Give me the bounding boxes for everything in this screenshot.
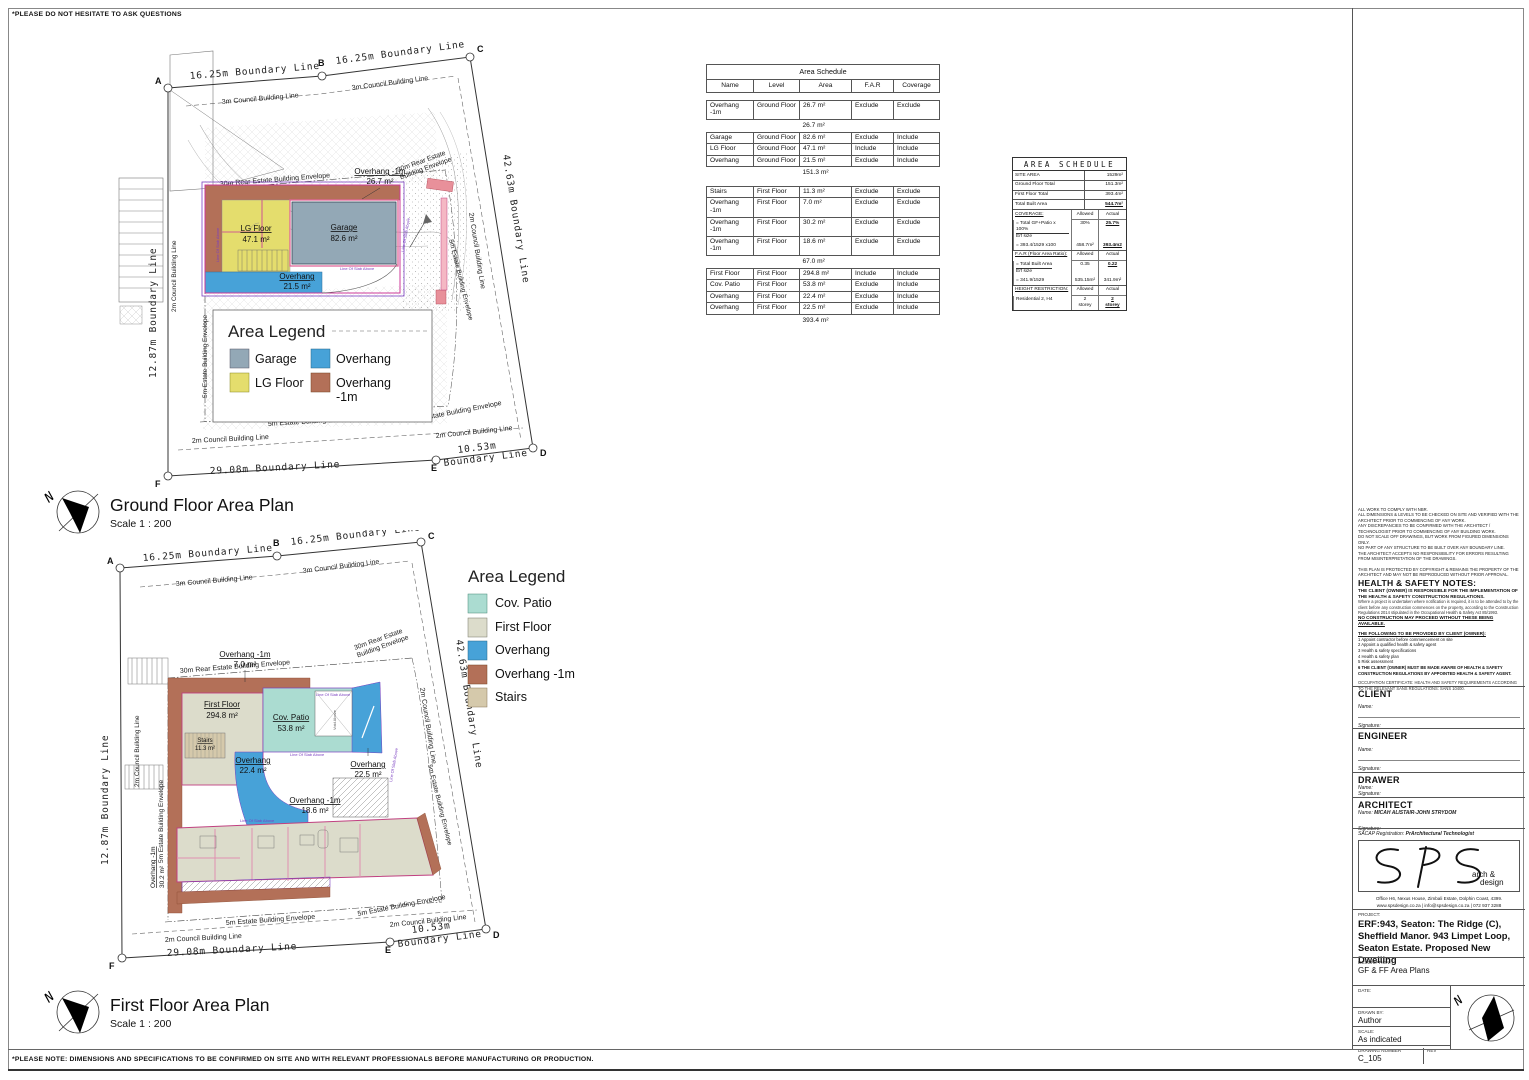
legend-label-overhang: Overhang bbox=[336, 352, 391, 366]
description-label: DESCRIPTION: bbox=[1358, 960, 1520, 965]
schedule-title: Area Schedule bbox=[707, 65, 940, 80]
col-header-area: Area bbox=[800, 80, 852, 93]
area-value-overhang: 21.5 m² bbox=[283, 282, 310, 291]
cell-area: 22.4 m² bbox=[800, 291, 852, 303]
table-row: Overhang -1mFirst Floor7.0 m²ExcludeExcl… bbox=[707, 198, 940, 217]
project-section: PROJECT: ERF:943, Seaton: The Ridge (C),… bbox=[1353, 909, 1525, 957]
legend-swatch-garage bbox=[230, 349, 249, 368]
cell-far: Exclude bbox=[852, 303, 894, 315]
legend-label-overhang-1m: -1m bbox=[336, 390, 358, 404]
height-actual: 2 bbox=[1111, 297, 1114, 302]
cell-coverage: Exclude bbox=[894, 186, 940, 198]
boundary-label-fa: 12.87m Boundary Line bbox=[100, 735, 111, 865]
subtotal-row: 393.4 m² bbox=[707, 314, 940, 326]
legend-swatch-overhang-1m bbox=[311, 373, 330, 392]
north-letter: N bbox=[41, 489, 58, 506]
table-row: Cov. PatioFirst Floor53.8 m²ExcludeInclu… bbox=[707, 280, 940, 292]
area-value-lg-floor: 47.1 m² bbox=[242, 235, 269, 244]
pt-d: D bbox=[493, 930, 500, 940]
cell-coverage: Exclude bbox=[894, 198, 940, 217]
cell-area: 11.3 m² bbox=[800, 186, 852, 198]
cell-name: Overhang -1m bbox=[707, 198, 754, 217]
cell-level: First Floor bbox=[754, 280, 800, 292]
pt-d: D bbox=[540, 448, 547, 458]
boundary-label-bc: 16.25m Boundary Line bbox=[290, 530, 421, 548]
area-value-oh1m-7: 7.0 m² bbox=[234, 660, 257, 669]
envelope-5m-label: 5m Estate Building Envelope bbox=[158, 780, 165, 863]
far-label: F.A.R (Floor Area Ratio): bbox=[1013, 251, 1071, 261]
drawn-by-value: Author bbox=[1358, 1016, 1445, 1025]
architect-title: ARCHITECT bbox=[1358, 800, 1520, 810]
cell-level: First Floor bbox=[754, 303, 800, 315]
far-allowed: 0.35 bbox=[1071, 261, 1098, 277]
pt-a: A bbox=[155, 76, 162, 86]
pt-c: C bbox=[477, 44, 484, 54]
far-allowed: 535.15m² bbox=[1071, 276, 1098, 285]
ground-legend: Area Legend Garage Overhang LG Floor Ove… bbox=[213, 310, 432, 422]
cell-far: Exclude bbox=[852, 100, 894, 119]
drawn-by-label: DRAWN BY: bbox=[1358, 1010, 1445, 1015]
summary-row-ff-total: First Floor Total393.4m² bbox=[1013, 191, 1126, 201]
summary-value: 393.4m² bbox=[1084, 191, 1126, 200]
cell-far: Include bbox=[852, 144, 894, 156]
coverage-formula: = Total GF+Patio x 100% bbox=[1016, 221, 1069, 234]
subtotal-value: 151.3 m² bbox=[800, 167, 852, 179]
cell-far: Exclude bbox=[852, 236, 894, 255]
cell-name: Stairs bbox=[707, 186, 754, 198]
pt-f: F bbox=[109, 961, 115, 971]
legend-swatch-stairs bbox=[468, 688, 487, 707]
health-safety-notes: HEALTH & SAFETY NOTES: THE CLIENT (OWNER… bbox=[1353, 576, 1525, 693]
summary-row-gf-total: Ground Floor Total151.3m² bbox=[1013, 181, 1126, 191]
allowed-header: Allowed bbox=[1071, 286, 1098, 296]
first-legend-title: Area Legend bbox=[468, 567, 565, 586]
legend-label-first-floor: First Floor bbox=[495, 620, 551, 634]
actual-header: Actual bbox=[1098, 251, 1126, 261]
bottom-note-band: *PLEASE NOTE: DIMENSIONS AND SPECIFICATI… bbox=[8, 1049, 1524, 1071]
area-label-overhang-b: Overhang bbox=[350, 760, 385, 769]
summary-label: First Floor Total bbox=[1013, 191, 1084, 200]
area-label-overhang: Overhang bbox=[279, 272, 314, 281]
summary-row-total-built: Total Built Area544.7m² bbox=[1013, 200, 1126, 210]
legend-label-stairs: Stairs bbox=[495, 690, 527, 704]
table-row: Overhang -1mFirst Floor18.6 m²ExcludeExc… bbox=[707, 236, 940, 255]
area-label-cov-patio: Cov. Patio bbox=[273, 713, 310, 722]
height-label: HEIGHT RESTRICTION: bbox=[1013, 286, 1071, 296]
legend-label-overhang: Overhang bbox=[495, 643, 550, 657]
slab-label: Line Of Slab Above bbox=[316, 692, 351, 697]
drawer-title: DRAWER bbox=[1358, 775, 1520, 785]
cell-level: First Floor bbox=[754, 186, 800, 198]
engineer-section: ENGINEER Name: Signature: bbox=[1353, 728, 1525, 772]
garage-area-shape bbox=[292, 202, 396, 264]
subtotal-value: 67.0 m² bbox=[800, 255, 852, 268]
legend-swatch-overhang-1m bbox=[468, 665, 487, 684]
cell-name: Overhang bbox=[707, 291, 754, 303]
cell-area: 21.5 m² bbox=[800, 155, 852, 167]
void-above-label: Void Above bbox=[332, 709, 337, 730]
drawer-section: DRAWER Name: Signature: bbox=[1353, 772, 1525, 797]
height-actual: storey bbox=[1105, 303, 1119, 308]
legend-swatch-overhang bbox=[311, 349, 330, 368]
pt-b: B bbox=[273, 538, 280, 548]
coverage-actual: 25.7% bbox=[1098, 220, 1126, 241]
client-section: CLIENT Name: Signature: bbox=[1353, 686, 1525, 728]
council-2m-label: 2m Council Building Line bbox=[171, 240, 178, 312]
titleblock-compass-cell: N bbox=[1450, 985, 1525, 1049]
summary-value: 151.3m² bbox=[1084, 181, 1126, 190]
area-label-oh1m-7: Overhang -1m bbox=[219, 650, 270, 659]
cell-far: Exclude bbox=[852, 186, 894, 198]
cell-coverage: Include bbox=[894, 303, 940, 315]
height-desc: Residential 2, H4 bbox=[1013, 296, 1071, 311]
scale-value: As indicated bbox=[1358, 1035, 1445, 1044]
cell-name: LG Floor bbox=[707, 144, 754, 156]
area-label-first-floor: First Floor bbox=[204, 700, 240, 709]
coverage-formula: = 393.4/1529 x100 bbox=[1013, 241, 1071, 250]
description-text: GF & FF Area Plans bbox=[1358, 966, 1520, 975]
area-value-first-floor: 294.8 m² bbox=[206, 711, 238, 720]
cell-coverage: Include bbox=[894, 280, 940, 292]
area-label-overhang-a: Overhang bbox=[235, 756, 270, 765]
cell-area: 53.8 m² bbox=[800, 280, 852, 292]
cell-coverage: Include bbox=[894, 132, 940, 144]
table-row: First FloorFirst Floor294.8 m²IncludeInc… bbox=[707, 268, 940, 280]
legend-label-lg-floor: LG Floor bbox=[255, 376, 304, 390]
area-label-overhang-1m: Overhang -1m bbox=[354, 167, 405, 176]
envelope-5m-label: 5m Estate Building Envelope bbox=[357, 894, 446, 918]
summary-row-site-area: SITE AREA1529m² bbox=[1013, 171, 1126, 181]
cell-level: Ground Floor bbox=[754, 144, 800, 156]
cell-name: First Floor bbox=[707, 268, 754, 280]
titleblock-north-arrow: N bbox=[1451, 986, 1525, 1048]
table-row: GarageGround Floor82.6 m²ExcludeInclude bbox=[707, 132, 940, 144]
cell-name: Overhang -1m bbox=[707, 236, 754, 255]
cell-name: Overhang -1m bbox=[707, 217, 754, 236]
subtotal-row: 26.7 m² bbox=[707, 120, 940, 133]
cell-coverage: Include bbox=[894, 155, 940, 167]
boundary-label-bc: 16.25m Boundary Line bbox=[335, 39, 466, 67]
area-schedule: Area Schedule Name Level Area F.A.R Cove… bbox=[706, 64, 940, 326]
subtotal-row: 151.3 m² bbox=[707, 167, 940, 179]
cell-far: Exclude bbox=[852, 155, 894, 167]
ground-north-arrow: N bbox=[41, 489, 99, 533]
address-line: Office H6, Nexus House, Zimbali Estate, … bbox=[1358, 896, 1520, 903]
cell-coverage: Exclude bbox=[894, 100, 940, 119]
cell-level: First Floor bbox=[754, 236, 800, 255]
table-row: StairsFirst Floor11.3 m²ExcludeExclude bbox=[707, 186, 940, 198]
boundary-label-fe: 29.08m Boundary Line bbox=[167, 941, 298, 959]
area-label-oh1m-30: Overhang -1m bbox=[150, 846, 157, 888]
height-allowed: storey bbox=[1078, 303, 1091, 308]
pt-f: F bbox=[155, 479, 161, 489]
legend-swatch-first-floor bbox=[468, 618, 487, 637]
cell-area: 22.5 m² bbox=[800, 303, 852, 315]
hs-statement: THE CLIENT (OWNER) IS RESPONSIBLE FOR TH… bbox=[1358, 588, 1520, 599]
cell-name: Overhang -1m bbox=[707, 100, 754, 119]
council-2m-label: 2m Council Building Line bbox=[418, 687, 437, 764]
coverage-allowed: 30% bbox=[1071, 220, 1098, 241]
council-3m-label: 3m Council Building Line bbox=[176, 574, 253, 588]
legend-swatch-cov-patio bbox=[468, 594, 487, 613]
hs-title: HEALTH & SAFETY NOTES: bbox=[1358, 578, 1520, 588]
subtotal-value: 26.7 m² bbox=[800, 120, 852, 133]
far-actual: 0.22 bbox=[1098, 261, 1126, 277]
area-value-overhang-1m: 26.7 m² bbox=[366, 177, 393, 186]
engineer-title: ENGINEER bbox=[1358, 731, 1520, 741]
hs-statement: NO CONSTRUCTION MAY PROCEED WITHOUT THES… bbox=[1358, 615, 1520, 626]
allowed-header: Allowed bbox=[1071, 251, 1098, 261]
logo-subtext: design bbox=[1480, 878, 1504, 887]
cell-coverage: Include bbox=[894, 291, 940, 303]
area-value-oh1m-18: 18.6 m² bbox=[301, 806, 328, 815]
first-site-structures bbox=[125, 658, 168, 789]
summary-value: 1529m² bbox=[1084, 171, 1126, 180]
far-actual: 341.9m² bbox=[1098, 276, 1126, 285]
summary-label: SITE AREA bbox=[1013, 171, 1084, 180]
allowed-header: Allowed bbox=[1071, 210, 1098, 220]
cell-name: Overhang bbox=[707, 303, 754, 315]
summary-title: AREA SCHEDULE bbox=[1013, 158, 1126, 171]
legend-label-overhang-1m: Overhang -1m bbox=[495, 667, 575, 681]
cell-name: Overhang bbox=[707, 155, 754, 167]
cell-far: Exclude bbox=[852, 132, 894, 144]
cell-area: 7.0 m² bbox=[800, 198, 852, 217]
area-schedule-summary: AREA SCHEDULE SITE AREA1529m² Ground Flo… bbox=[1012, 157, 1127, 311]
summary-coverage-section: COVERAGE: Allowed Actual = Total GF+Pati… bbox=[1013, 210, 1126, 251]
area-label-oh1m-18: Overhang -1m bbox=[289, 796, 340, 805]
first-floor-plan: A B C D E F 16.25m Boundary Line 16.25m … bbox=[0, 530, 700, 1080]
summary-far-section: F.A.R (Floor Area Ratio): Allowed Actual… bbox=[1013, 251, 1126, 286]
first-north-arrow: N bbox=[41, 989, 99, 1033]
council-3m-label: 3m Council Building Line bbox=[222, 92, 299, 106]
drawn-by-section: DRAWN BY: Author bbox=[1353, 1007, 1450, 1026]
summary-height-section: HEIGHT RESTRICTION: Allowed Actual Resid… bbox=[1013, 286, 1126, 310]
boundary-label-ab: 16.25m Boundary Line bbox=[189, 61, 320, 82]
name-label: Name: bbox=[1358, 810, 1373, 816]
scale-section: SCALE: As indicated bbox=[1353, 1026, 1450, 1045]
far-formula: Erf size bbox=[1016, 269, 1032, 274]
cell-area: 47.1 m² bbox=[800, 144, 852, 156]
cell-level: First Floor bbox=[754, 198, 800, 217]
table-row: Overhang -1mFirst Floor30.2 m²ExcludeExc… bbox=[707, 217, 940, 236]
slab-label: Line Of Slab Above bbox=[388, 747, 399, 782]
col-header-far: F.A.R bbox=[852, 80, 894, 93]
cell-level: Ground Floor bbox=[754, 100, 800, 119]
council-2m-label: 2m Council Building Line bbox=[192, 434, 269, 445]
cell-level: First Floor bbox=[754, 268, 800, 280]
area-label-lg-floor: LG Floor bbox=[240, 224, 271, 233]
cell-level: First Floor bbox=[754, 291, 800, 303]
cell-level: Ground Floor bbox=[754, 155, 800, 167]
cell-far: Exclude bbox=[852, 198, 894, 217]
actual-header: Actual bbox=[1098, 210, 1126, 220]
area-value-garage: 82.6 m² bbox=[330, 234, 357, 243]
coverage-actual: 393.4m2 bbox=[1098, 241, 1126, 250]
council-3m-label: 3m Council Building Line bbox=[351, 75, 428, 92]
area-value-oh1m-30: 30.2 m² bbox=[159, 865, 166, 888]
sacap-value: PrArchitectural Technologist bbox=[1406, 831, 1474, 837]
architect-name: MICAH ALISTAIR-JOHN STRYDOM bbox=[1374, 810, 1456, 816]
pt-c: C bbox=[428, 531, 435, 541]
ground-plan-title: Ground Floor Area Plan bbox=[110, 495, 294, 515]
coverage-formula: Erf size bbox=[1016, 234, 1032, 239]
cell-name: Cov. Patio bbox=[707, 280, 754, 292]
table-row: LG FloorGround Floor47.1 m²IncludeInclud… bbox=[707, 144, 940, 156]
table-row: OverhangGround Floor21.5 m²ExcludeInclud… bbox=[707, 155, 940, 167]
area-schedule-table: Area Schedule Name Level Area F.A.R Cove… bbox=[706, 64, 940, 326]
pt-e: E bbox=[385, 945, 391, 955]
summary-value: 544.7m² bbox=[1084, 200, 1126, 209]
subtotal-row: 67.0 m² bbox=[707, 255, 940, 268]
ground-plan-scale: Scale 1 : 200 bbox=[110, 518, 171, 530]
general-note: ANY DISCREPANCIES TO BE CONFIRMED WITH T… bbox=[1358, 523, 1520, 534]
table-row: OverhangFirst Floor22.5 m²ExcludeInclude bbox=[707, 303, 940, 315]
legend-label-cov-patio: Cov. Patio bbox=[495, 596, 552, 610]
cell-coverage: Exclude bbox=[894, 217, 940, 236]
cell-coverage: Include bbox=[894, 144, 940, 156]
far-formula: = 341.9/1529 bbox=[1013, 276, 1071, 285]
bottom-note: *PLEASE NOTE: DIMENSIONS AND SPECIFICATI… bbox=[8, 1056, 594, 1063]
overhang-right-shape bbox=[352, 682, 382, 753]
legend-swatch-overhang bbox=[468, 641, 487, 660]
cell-coverage: Exclude bbox=[894, 236, 940, 255]
area-value-cov-patio: 53.8 m² bbox=[277, 724, 304, 733]
cell-far: Exclude bbox=[852, 217, 894, 236]
slab-label: Line Of Slab Above bbox=[340, 266, 375, 271]
general-note: DO NOT SCALE OFF DRAWINGS, BUT WORK FROM… bbox=[1358, 534, 1520, 545]
sacap-section: SACAP Registration: PrArchitectural Tech… bbox=[1353, 828, 1525, 840]
cell-name: Garage bbox=[707, 132, 754, 144]
legend-label-garage: Garage bbox=[255, 352, 297, 366]
pt-e: E bbox=[431, 463, 437, 473]
area-value-overhang-b: 22.5 m² bbox=[354, 770, 381, 779]
envelope-5m-label: 5m Estate Building Envelope bbox=[202, 315, 209, 398]
slab-label: Line Of Slab Above bbox=[240, 818, 275, 823]
pt-a: A bbox=[107, 556, 114, 566]
logo-section: arch & design bbox=[1353, 840, 1525, 892]
area-value-stairs: 11.3 m² bbox=[195, 746, 215, 752]
name-signature-line bbox=[1358, 753, 1520, 761]
sacap-label: SACAP Registration: bbox=[1358, 831, 1404, 837]
cell-area: 294.8 m² bbox=[800, 268, 852, 280]
cell-coverage: Include bbox=[894, 268, 940, 280]
ground-floor-plan: A B C D E F 16.25m Boundary Line 16.25m … bbox=[0, 0, 700, 545]
cell-area: 18.6 m² bbox=[800, 236, 852, 255]
height-allowed: 2 bbox=[1084, 297, 1087, 302]
boundary-label-fa: 12.87m Boundary Line bbox=[148, 248, 159, 378]
general-note: ALL DIMENSIONS & LEVELS TO BE CHECKED ON… bbox=[1358, 512, 1520, 523]
general-note: NO PART OF ANY STRUCTURE TO BE BUILT OVE… bbox=[1358, 545, 1520, 550]
hs-list-item: 6 THE CLIENT (OWNER) MUST BE MADE AWARE … bbox=[1358, 665, 1520, 676]
slab-label: Line Of Slab Above bbox=[215, 227, 220, 262]
cell-level: First Floor bbox=[754, 217, 800, 236]
coverage-label: COVERAGE: bbox=[1013, 210, 1071, 220]
first-plan-title: First Floor Area Plan bbox=[110, 995, 270, 1015]
first-legend: Area Legend Cov. Patio First Floor Overh… bbox=[468, 567, 575, 707]
north-letter: N bbox=[1451, 992, 1466, 1009]
client-title: CLIENT bbox=[1358, 689, 1520, 699]
general-notes: ALL WORK TO COMPLY WITH NBR. ALL DIMENSI… bbox=[1353, 505, 1525, 579]
coverage-allowed: 458.7m² bbox=[1071, 241, 1098, 250]
actual-header: Actual bbox=[1098, 286, 1126, 296]
table-row: Overhang -1mGround Floor26.7 m²ExcludeEx… bbox=[707, 100, 940, 119]
cell-area: 30.2 m² bbox=[800, 217, 852, 236]
col-header-coverage: Coverage bbox=[894, 80, 940, 93]
ground-legend-title: Area Legend bbox=[228, 322, 325, 341]
title-block: ALL WORK TO COMPLY WITH NBR. ALL DIMENSI… bbox=[1352, 8, 1525, 1049]
boundary-label-fe: 29.08m Boundary Line bbox=[210, 459, 341, 477]
far-formula: = Total Built Area bbox=[1016, 262, 1052, 269]
col-header-name: Name bbox=[707, 80, 754, 93]
first-plan-scale: Scale 1 : 200 bbox=[110, 1018, 171, 1030]
envelope-5m-label: 5m Estate Building Envelope bbox=[226, 914, 316, 927]
area-value-overhang-a: 22.4 m² bbox=[239, 766, 266, 775]
cell-far: Exclude bbox=[852, 280, 894, 292]
summary-label: Ground Floor Total bbox=[1013, 181, 1084, 190]
project-label: PROJECT: bbox=[1358, 912, 1520, 917]
name-signature-line bbox=[1358, 710, 1520, 718]
general-note: THE ARCHITECT ACCEPTS NO RESPONSIBILITY … bbox=[1358, 551, 1520, 562]
cell-area: 26.7 m² bbox=[800, 100, 852, 119]
legend-swatch-lg-floor bbox=[230, 373, 249, 392]
slab-label: Line Of Slab Above bbox=[290, 752, 325, 757]
sps-logo: arch & design bbox=[1360, 841, 1520, 891]
scale-label: SCALE: bbox=[1358, 1029, 1445, 1034]
area-label-stairs: Stairs bbox=[197, 738, 212, 744]
subtotal-value: 393.4 m² bbox=[800, 314, 852, 326]
hs-paragraph: Where a project is undertaken where noti… bbox=[1358, 599, 1520, 615]
table-row: OverhangFirst Floor22.4 m²ExcludeInclude bbox=[707, 291, 940, 303]
cell-far: Include bbox=[852, 268, 894, 280]
north-letter: N bbox=[41, 989, 58, 1006]
col-header-level: Level bbox=[754, 80, 800, 93]
legend-label-overhang-1m: Overhang bbox=[336, 376, 391, 390]
description-section: DESCRIPTION: GF & FF Area Plans bbox=[1353, 957, 1525, 985]
council-3m-label: 3m Council Building Line bbox=[302, 559, 379, 575]
cell-far: Exclude bbox=[852, 291, 894, 303]
cell-area: 82.6 m² bbox=[800, 132, 852, 144]
summary-label: Total Built Area bbox=[1013, 200, 1084, 209]
area-label-garage: Garage bbox=[331, 223, 358, 232]
council-2m-label: 2m Council Building Line bbox=[165, 933, 242, 944]
council-2m-label: 2m Council Building Line bbox=[134, 715, 141, 787]
council-2m-label: 2m Council Building Line bbox=[435, 425, 512, 440]
boundary-label-cd: 42.63m Boundary Line bbox=[500, 154, 531, 285]
cell-level: Ground Floor bbox=[754, 132, 800, 144]
